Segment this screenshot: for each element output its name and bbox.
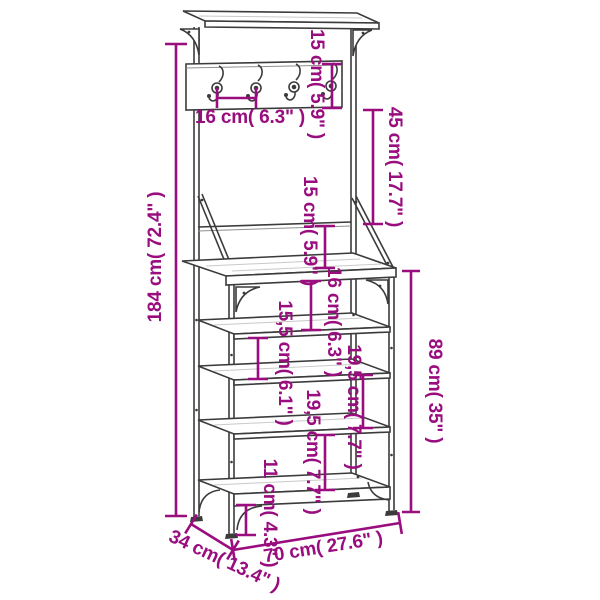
diagram-canvas: 184 cm( 72.4" ) 15 cm( 5.9" ) 16 cm( 6.3… (0, 0, 600, 600)
tabletop-gusset-left (236, 287, 260, 312)
shelf-bottom (198, 473, 390, 506)
dimension-total-height: 184 cm( 72.4" ) (145, 44, 187, 516)
front-post-right (389, 277, 394, 511)
dimension-shelf-gap-middle: 19,5 cm( 7.7" ) (343, 344, 373, 469)
tabletop-gusset-right (366, 280, 388, 304)
dimension-label-hook-spacing: 16 cm( 6.3" ) (195, 107, 305, 128)
dimension-label-backrail-to-tabletop: 15 cm( 5.9" ) (299, 176, 320, 286)
dimension-label-panel-to-backrail: 45 cm( 17.7" ) (384, 107, 405, 227)
dimension-label-tabletop-to-shelf: 16 cm( 6.3" ) (323, 267, 344, 377)
dimension-width: 70 cm( 27.6" ) (231, 512, 402, 567)
dimension-panel-to-backrail: 45 cm( 17.7" ) (363, 107, 405, 227)
dimension-label-bench-height: 89 cm( 35" ) (424, 339, 445, 444)
dimension-label-hook-panel-height: 15 cm( 5.9" ) (306, 29, 327, 139)
top-shelf (183, 11, 379, 29)
dimension-label-shelf-gap-upper: 15,5 cm( 6.1" ) (274, 300, 295, 425)
dimension-label-shelf-gap-middle: 19,5 cm( 7.7" ) (343, 344, 364, 469)
dimension-bench-height: 89 cm( 35" ) (402, 271, 445, 512)
tabletop (182, 253, 396, 285)
furniture-dimension-diagram: 184 cm( 72.4" ) 15 cm( 5.9" ) 16 cm( 6.3… (0, 0, 600, 600)
top-shelf-bracket-left (180, 29, 199, 55)
furniture-drawing (180, 11, 398, 539)
dimension-annotations: 184 cm( 72.4" ) 15 cm( 5.9" ) 16 cm( 6.3… (145, 29, 445, 596)
dimension-label-total-height: 184 cm( 72.4" ) (145, 192, 166, 323)
dimension-label-shelf-gap-lower: 19,5 cm( 7.7" ) (302, 389, 323, 514)
